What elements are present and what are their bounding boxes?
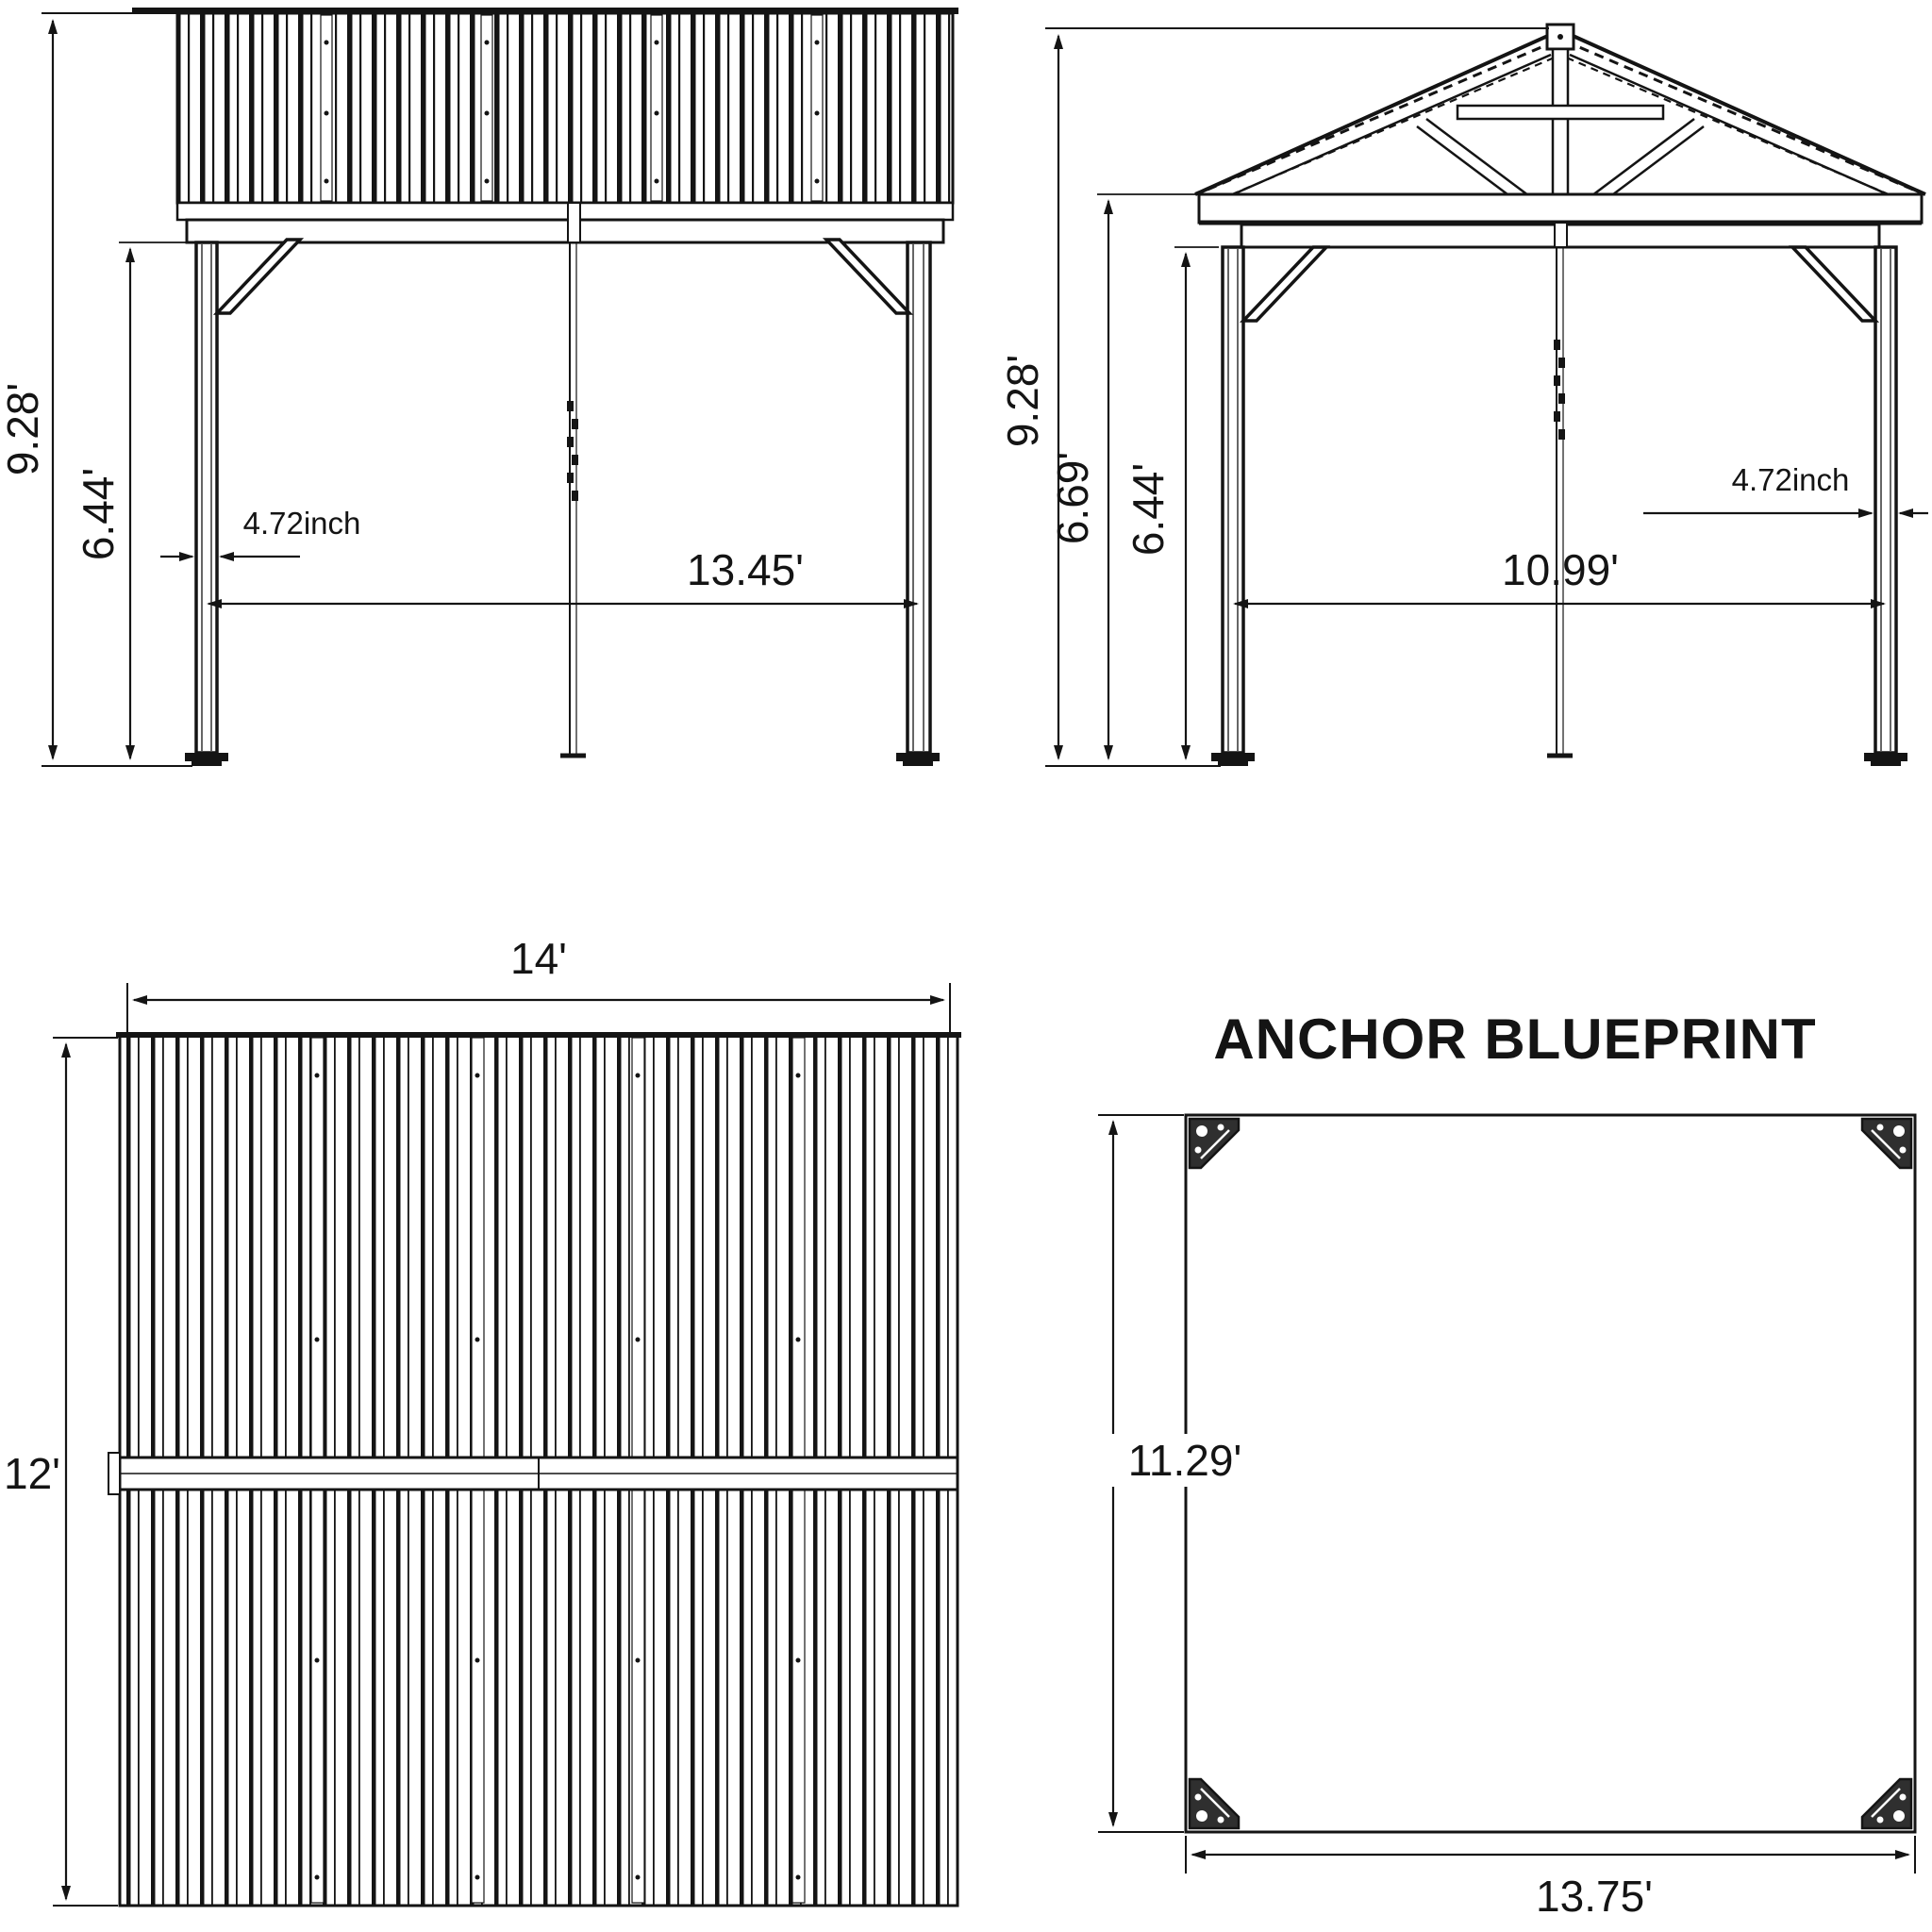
dim-label-side-total-height: 9.28' [0,383,47,475]
beam-center-connector-front [1555,223,1567,247]
dim-label-front-post-height: 6.44' [1124,463,1173,556]
anchor-blueprint-title: ANCHOR BLUEPRINT [1213,1008,1816,1071]
dim-label-front-span: 10.99' [1502,545,1619,594]
dim-label-side-post-height: 6.44' [74,468,123,560]
truss-collar-tie [1457,106,1663,119]
view-roof-top: 14' 12' [4,934,961,1906]
base-plate-right [896,753,940,761]
dim-label-anchor-depth: 11.29' [1128,1436,1241,1485]
post-right [896,242,940,766]
roof-rib-panel [177,13,953,203]
blueprint-page: 9.28' 6.44' 4.72inch 13.45' [0,0,1932,1932]
blueprint-canvas: 9.28' 6.44' 4.72inch 13.45' [0,0,1932,1932]
dim-label-front-eave-height: 6.69' [1048,452,1097,544]
dim-label-roof-depth: 12' [4,1449,60,1498]
dim-label-anchor-width: 13.75' [1536,1872,1653,1921]
view-front-elevation: 9.28' 6.69' 6.44' 4.72inch 10.99' [998,25,1928,766]
base-plate-front-right [1864,753,1907,761]
apex-pin [1557,34,1563,40]
dim-label-roof-width: 14' [510,934,567,983]
dim-label-front-post-width: 4.72inch [1732,462,1850,497]
ridge-cap [108,1453,958,1494]
roof-fascia [177,203,953,220]
eave-fascia [1199,194,1922,223]
post-left [185,242,228,766]
anchor-footprint-square [1186,1115,1915,1832]
dim-label-side-post-width: 4.72inch [243,506,361,541]
dim-label-front-total-height: 9.28' [998,355,1047,447]
ridge-end-tab [108,1453,120,1494]
base-plate-front-left [1211,753,1255,761]
base-plate-left [185,753,228,761]
view-anchor-blueprint: ANCHOR BLUEPRINT 11.29' 13.75' [1087,1008,1915,1921]
front-dimensions: 9.28' 6.69' 6.44' 4.72inch 10.99' [998,28,1928,766]
dim-label-side-span: 13.45' [687,545,804,594]
post-front-left [1211,247,1255,766]
center-drop-line-front [1547,247,1573,756]
knee-brace-right [826,240,909,313]
beam-center-connector [568,203,580,242]
knee-brace-front-left [1243,247,1326,321]
post-front-right [1864,247,1907,766]
view-side-elevation: 9.28' 6.44' 4.72inch 13.45' [0,8,958,766]
knee-brace-left [217,240,300,313]
center-drop-line [560,242,586,756]
knee-brace-front-right [1792,247,1875,321]
